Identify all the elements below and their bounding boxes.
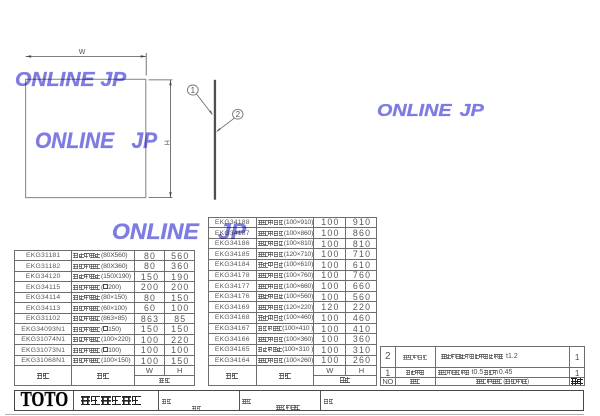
svg-text:W: W — [79, 49, 86, 56]
svg-text:2: 2 — [236, 110, 241, 119]
svg-text:H: H — [162, 140, 169, 145]
svg-text:1: 1 — [191, 86, 196, 95]
